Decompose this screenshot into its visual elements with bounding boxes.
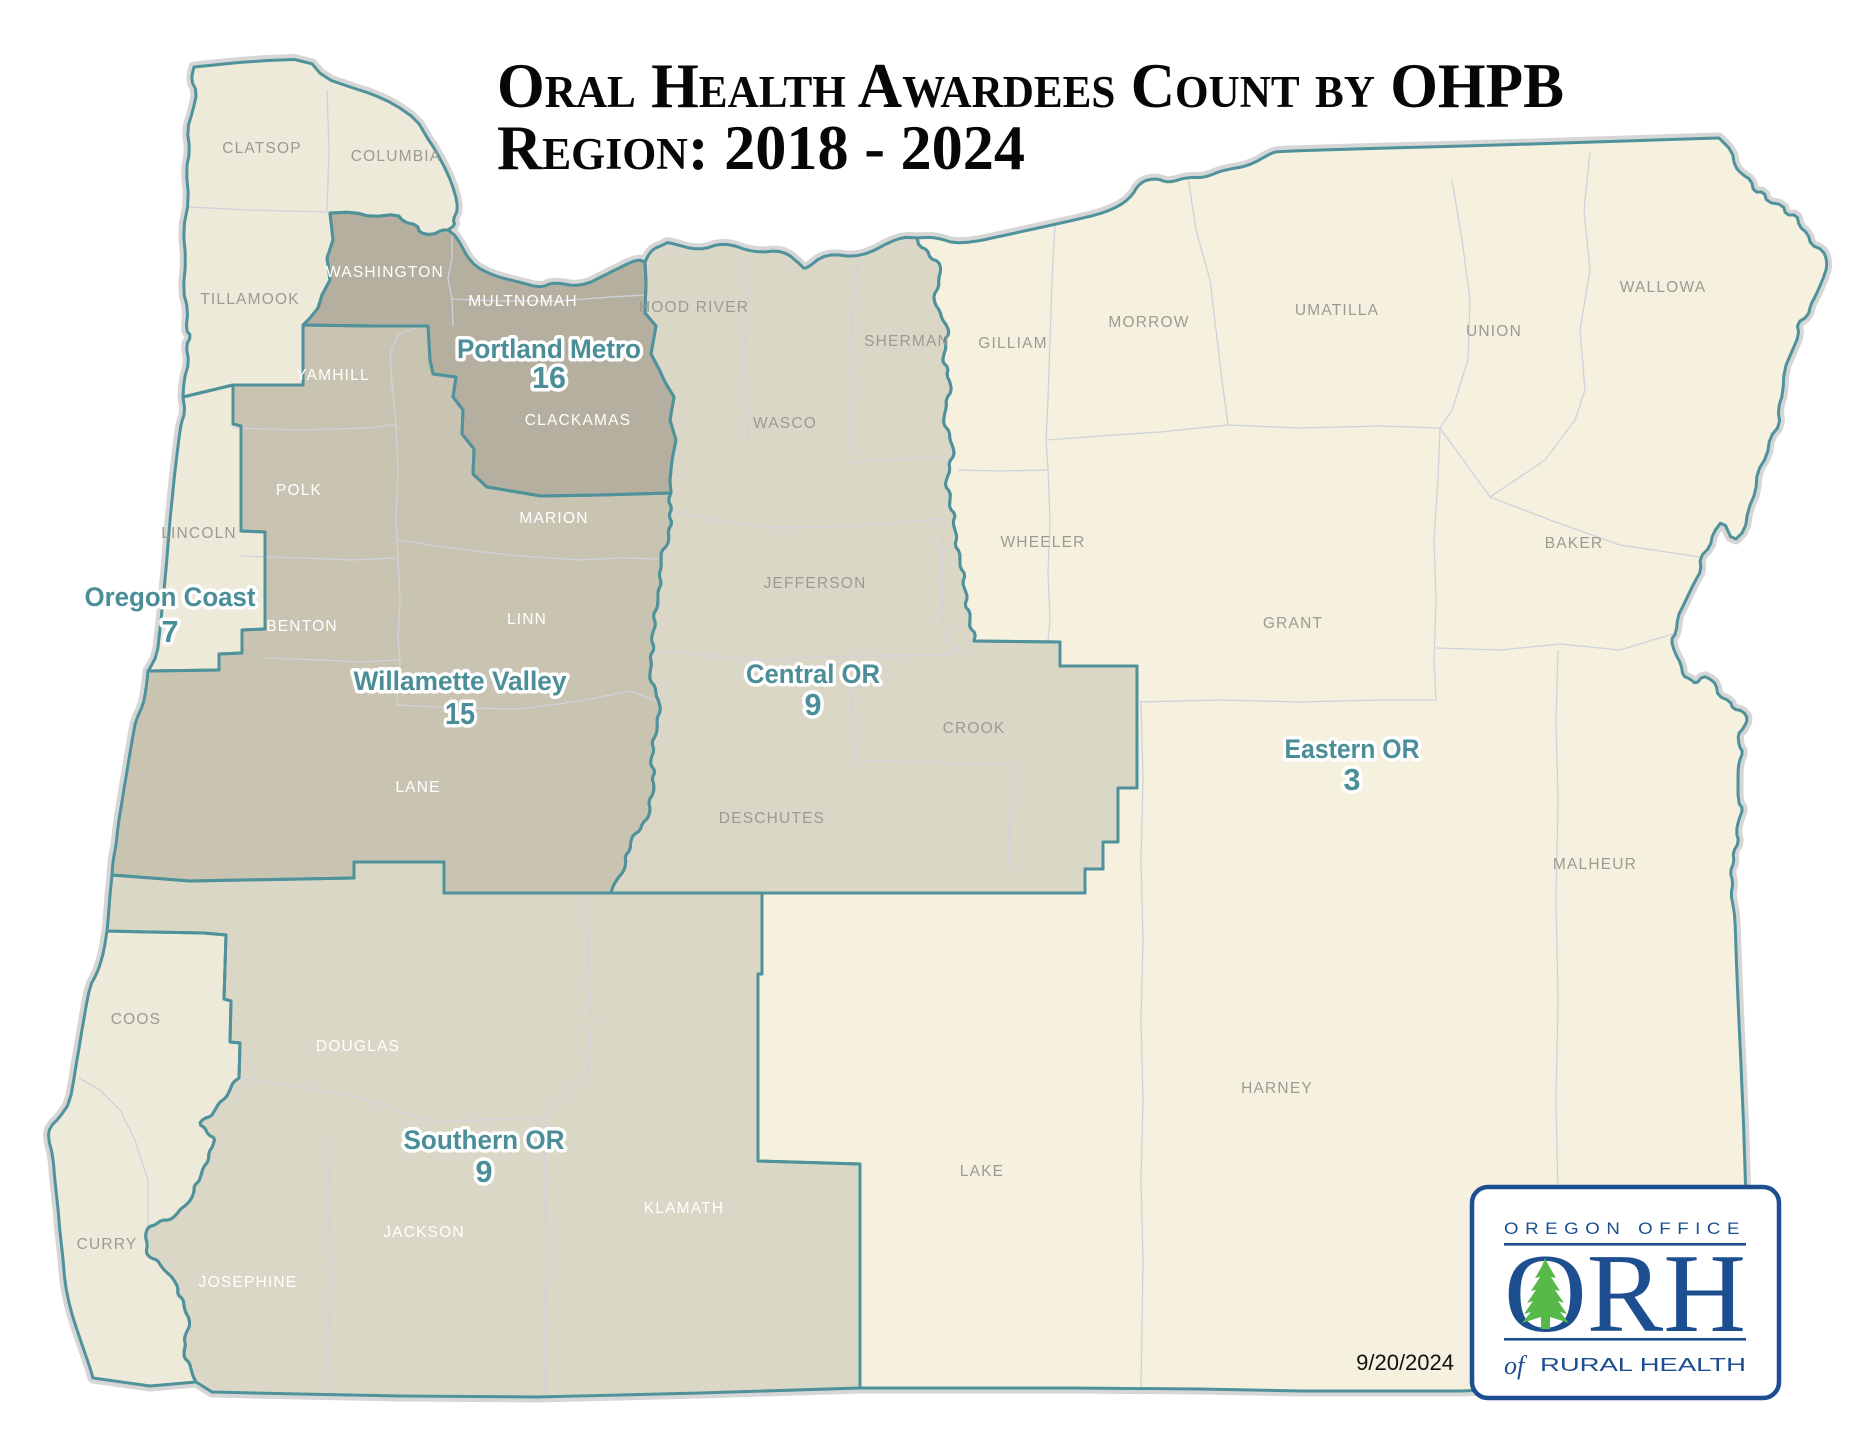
svg-text:SHERMAN: SHERMAN xyxy=(864,333,950,350)
svg-text:LINCOLN: LINCOLN xyxy=(161,525,237,542)
svg-text:POLK: POLK xyxy=(276,482,322,499)
svg-text:JACKSON: JACKSON xyxy=(383,1224,465,1241)
svg-text:MALHEUR: MALHEUR xyxy=(1553,856,1637,873)
svg-text:MULTNOMAH: MULTNOMAH xyxy=(468,293,578,310)
svg-text:9/20/2024: 9/20/2024 xyxy=(1356,1350,1454,1375)
svg-text:WASHINGTON: WASHINGTON xyxy=(326,264,444,281)
svg-text:TILLAMOOK: TILLAMOOK xyxy=(200,291,300,308)
svg-text:GILLIAM: GILLIAM xyxy=(978,335,1048,352)
svg-text:WHEELER: WHEELER xyxy=(1000,534,1085,551)
svg-text:9: 9 xyxy=(476,1154,493,1189)
svg-text:COLUMBIA: COLUMBIA xyxy=(351,148,442,165)
svg-text:DESCHUTES: DESCHUTES xyxy=(719,810,825,827)
svg-text:9: 9 xyxy=(805,687,822,722)
svg-text:UNION: UNION xyxy=(1466,323,1522,340)
svg-text:WASCO: WASCO xyxy=(753,415,817,432)
svg-text:3: 3 xyxy=(1344,762,1361,797)
svg-text:Southern OR: Southern OR xyxy=(404,1125,565,1155)
svg-text:BAKER: BAKER xyxy=(1545,535,1604,552)
svg-text:Central OR: Central OR xyxy=(746,659,880,689)
svg-text:HOOD RIVER: HOOD RIVER xyxy=(639,299,749,316)
svg-text:JEFFERSON: JEFFERSON xyxy=(764,575,867,592)
svg-text:BENTON: BENTON xyxy=(266,618,338,635)
svg-text:Oregon Coast: Oregon Coast xyxy=(85,582,256,612)
svg-text:RURAL HEALTH: RURAL HEALTH xyxy=(1540,1354,1746,1375)
svg-text:16: 16 xyxy=(532,360,566,395)
svg-text:YAMHILL: YAMHILL xyxy=(296,367,370,384)
svg-text:CLATSOP: CLATSOP xyxy=(222,140,302,157)
svg-text:DOUGLAS: DOUGLAS xyxy=(316,1038,400,1055)
svg-text:LINN: LINN xyxy=(507,611,547,628)
svg-text:CLACKAMAS: CLACKAMAS xyxy=(525,412,631,429)
svg-text:CURRY: CURRY xyxy=(77,1236,138,1253)
svg-text:Region: 2018 - 2024: Region: 2018 - 2024 xyxy=(497,112,1025,183)
svg-text:Eastern OR: Eastern OR xyxy=(1285,734,1420,764)
svg-text:GRANT: GRANT xyxy=(1263,615,1323,632)
svg-text:Willamette Valley: Willamette Valley xyxy=(354,666,567,696)
svg-text:MORROW: MORROW xyxy=(1108,314,1189,331)
svg-text:HARNEY: HARNEY xyxy=(1241,1080,1313,1097)
svg-text:Oral Health Awardees Count by: Oral Health Awardees Count by OHPB xyxy=(497,50,1564,121)
svg-text:MARION: MARION xyxy=(519,510,588,527)
svg-text:LAKE: LAKE xyxy=(960,1163,1004,1180)
svg-text:15: 15 xyxy=(445,696,475,731)
svg-text:COOS: COOS xyxy=(111,1011,161,1028)
svg-text:CROOK: CROOK xyxy=(943,720,1006,737)
svg-text:LANE: LANE xyxy=(395,779,440,796)
svg-text:UMATILLA: UMATILLA xyxy=(1295,302,1379,319)
svg-text:KLAMATH: KLAMATH xyxy=(644,1200,724,1217)
svg-text:WALLOWA: WALLOWA xyxy=(1620,279,1706,296)
svg-text:7: 7 xyxy=(162,614,179,649)
svg-text:JOSEPHINE: JOSEPHINE xyxy=(199,1274,298,1291)
